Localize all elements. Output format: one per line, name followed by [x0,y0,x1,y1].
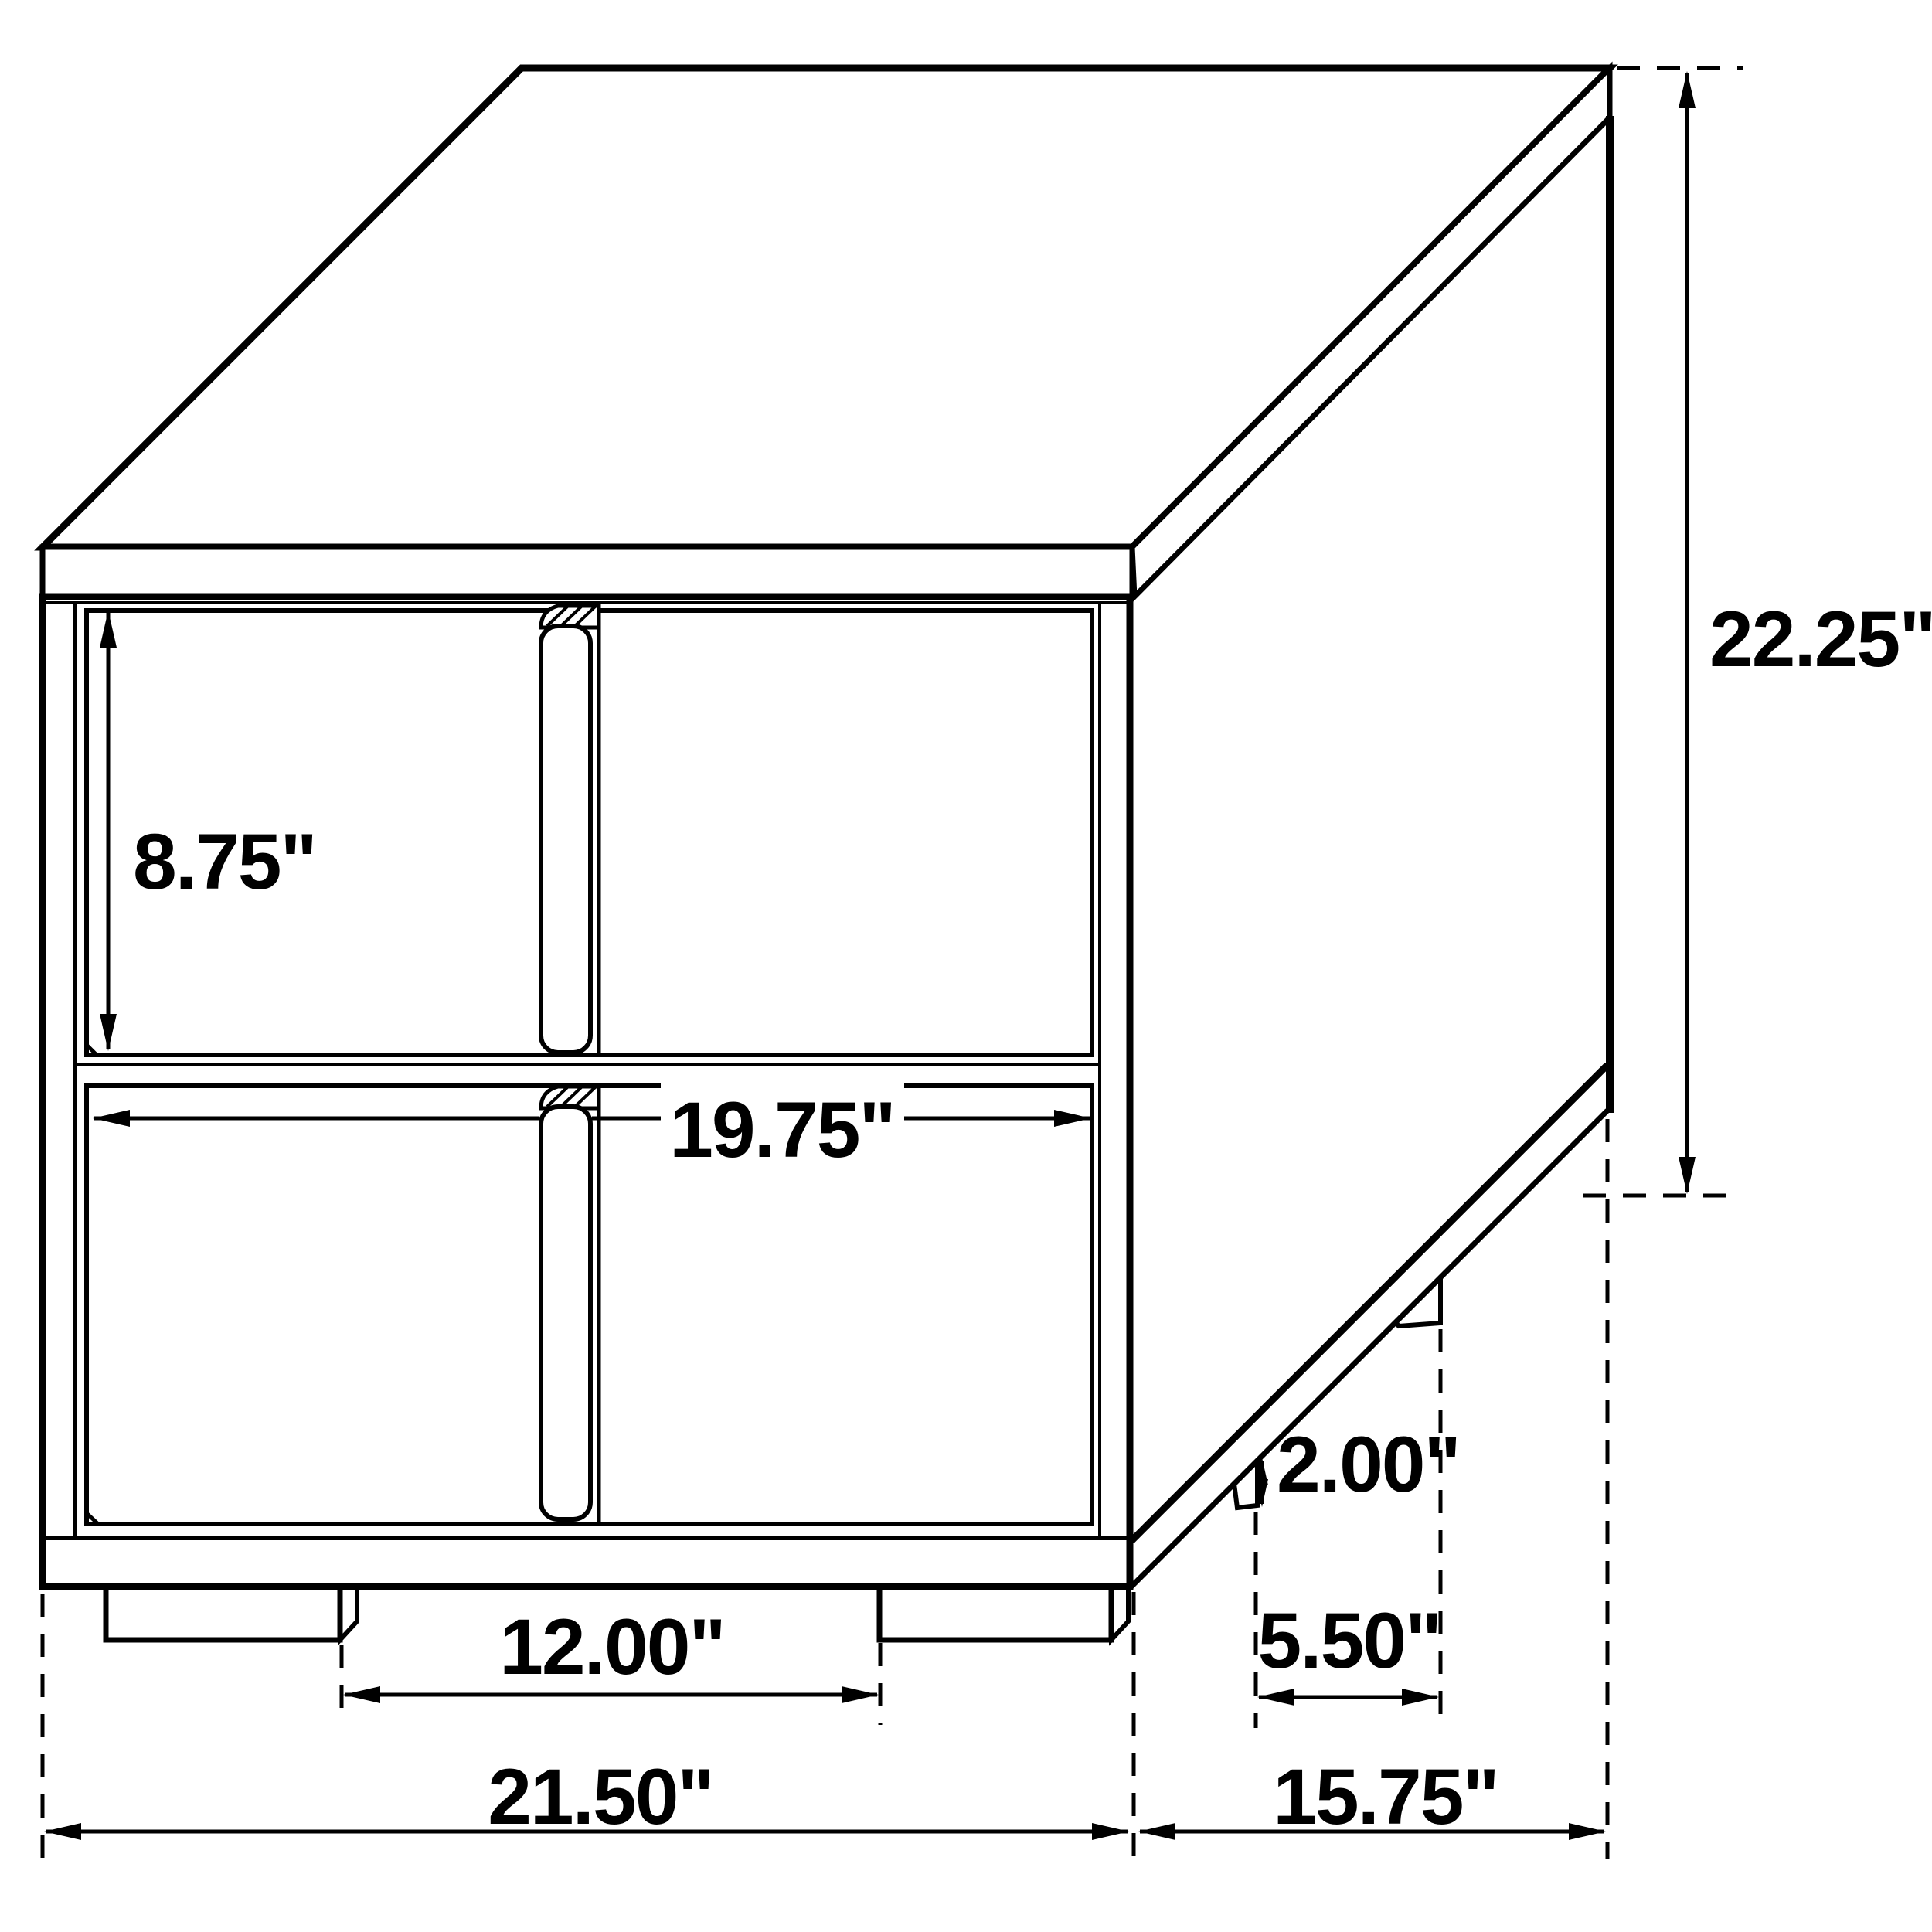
dimension-label-drawer-section-height: 8.75" [133,818,316,906]
handle-bar-lower [541,1107,590,1519]
dimension-label-front-feet-spacing: 12.00" [499,1603,725,1691]
dimension-label-overall-depth: 15.75" [1273,1753,1498,1841]
dimension-front-feet-spacing: 12.00" [342,1603,880,1725]
plinth-bottom-edge-side [1130,1111,1607,1588]
dimension-label-side-feet-spacing: 5.50" [1258,1597,1441,1685]
handle-bar-upper [541,626,590,1053]
front-foot-left [106,1587,340,1640]
nightstand-dimension-diagram: 8.75" 19.75" 22.25" 12.00" 2.00" [0,0,1932,1932]
dimension-drawing-page: 8.75" 19.75" 22.25" 12.00" 2.00" [0,0,1932,1932]
dimension-label-foot-height: 2.00" [1277,1420,1460,1509]
front-foot-right [879,1587,1111,1640]
dimension-overall-height: 22.25" [1583,68,1932,1196]
dimension-foot-height: 2.00" [1256,1420,1460,1509]
dimension-label-overall-width: 21.50" [488,1753,713,1841]
top-edge-front-band [43,547,1132,597]
dimension-label-drawer-width: 19.75" [669,1086,895,1174]
dimension-label-overall-height: 22.25" [1709,595,1932,683]
